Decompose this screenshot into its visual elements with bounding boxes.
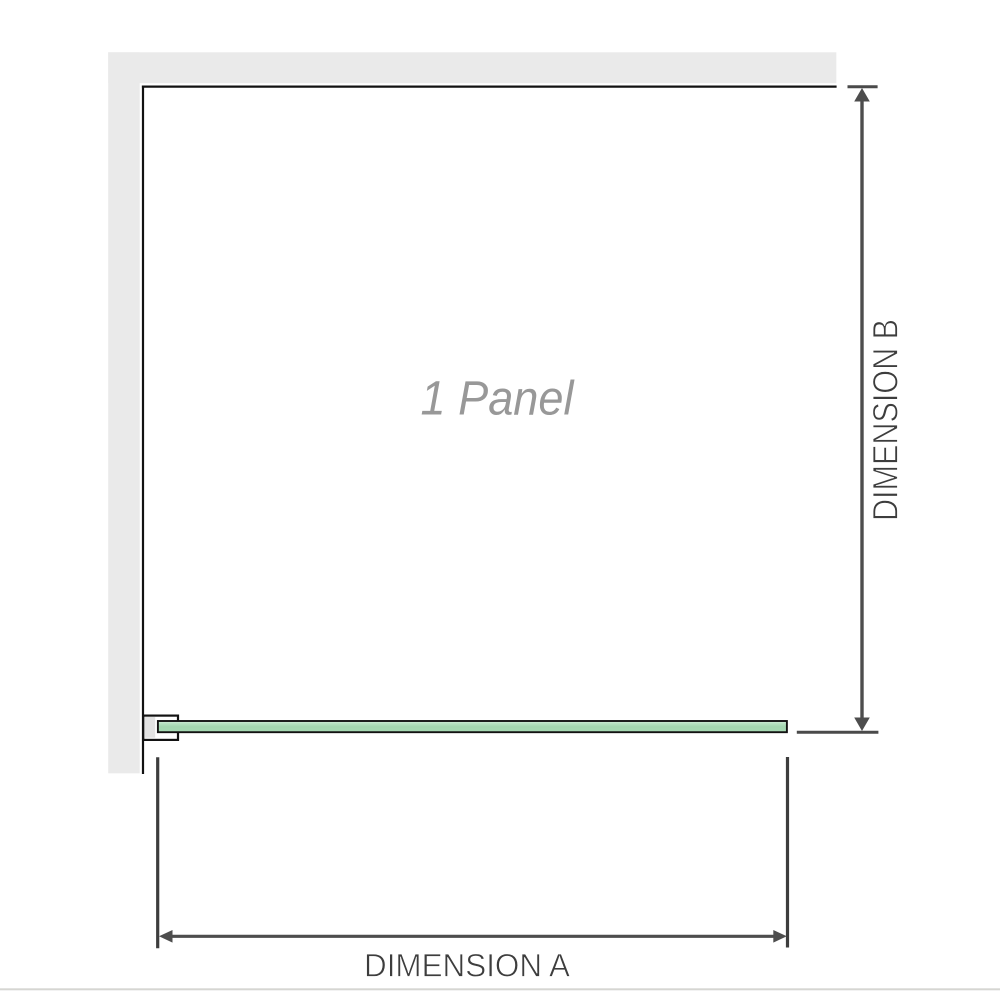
svg-text:DIMENSION B: DIMENSION B (867, 319, 906, 521)
svg-text:1 Panel: 1 Panel (421, 373, 575, 426)
svg-text:DIMENSION A: DIMENSION A (364, 948, 571, 984)
